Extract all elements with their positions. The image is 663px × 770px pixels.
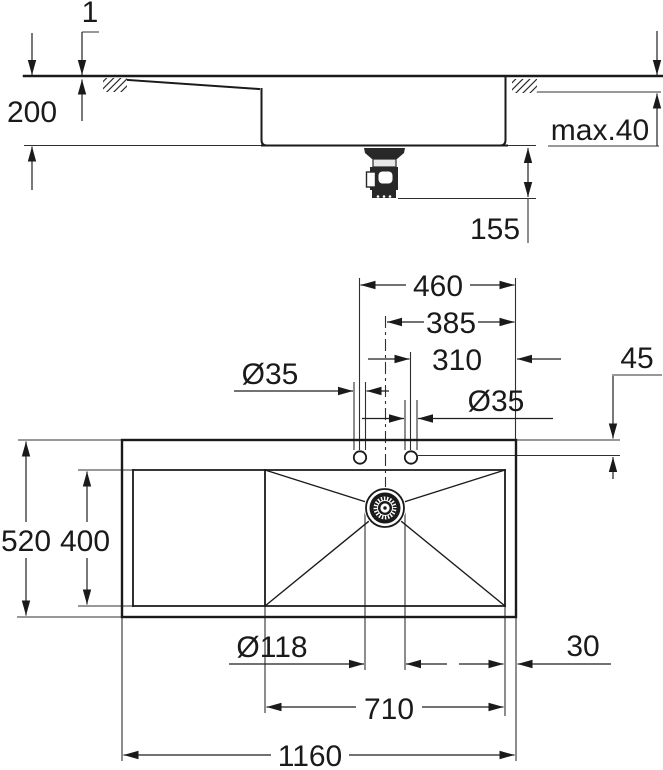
dim-drain-height: 155 xyxy=(398,148,536,246)
dim-460: 460 xyxy=(361,270,515,303)
sink-technical-drawing: 1 200 max.40 155 xyxy=(0,0,663,770)
side-view: 1 200 max.40 155 xyxy=(7,0,662,246)
drain-flange xyxy=(364,148,405,159)
dim-label-1: 1 xyxy=(82,0,99,29)
dim-45: 45 xyxy=(613,342,654,479)
faucet-hole-2 xyxy=(405,451,417,463)
dim-385: 385 xyxy=(387,307,515,340)
dim-710: 710 xyxy=(267,693,504,726)
dim-label-460: 460 xyxy=(413,270,463,303)
drain-neck xyxy=(373,159,396,167)
dim-520: 520 xyxy=(1,442,51,616)
drain-strainer-plan xyxy=(364,487,406,529)
drain-body-detail xyxy=(379,172,393,184)
drain-dot xyxy=(389,195,392,198)
dim-310: 310 xyxy=(368,344,561,377)
faucet-hole-1 xyxy=(354,451,366,463)
dim-label-385: 385 xyxy=(426,307,476,340)
dim-label-310: 310 xyxy=(432,344,482,377)
dim-bowl-depth: 200 xyxy=(7,33,57,190)
dim-400: 400 xyxy=(60,472,110,605)
dim-label-d118: Ø118 xyxy=(236,631,307,664)
dim-label-d35-right: Ø35 xyxy=(468,385,525,418)
dim-label-30: 30 xyxy=(566,630,599,663)
dim-label-520: 520 xyxy=(1,525,51,558)
drainboard-slope-line xyxy=(128,80,259,89)
drain-dot xyxy=(377,195,380,198)
drain-assembly-side xyxy=(364,148,405,198)
dim-label-max40: max.40 xyxy=(551,114,649,147)
drain-side-tab xyxy=(367,172,376,187)
dim-label-d35-left: Ø35 xyxy=(242,358,299,391)
dim-label-1160: 1160 xyxy=(278,740,343,770)
plan-view: 460 385 310 Ø35 Ø35 45 xyxy=(1,270,662,770)
drain-dot xyxy=(383,195,386,198)
dim-rim-height: 1 xyxy=(82,0,99,121)
dim-drain-diameter: Ø118 xyxy=(229,631,447,664)
bowl-left-wall xyxy=(262,89,268,146)
dim-label-710: 710 xyxy=(364,693,414,726)
drawing-page: 1 200 max.40 155 xyxy=(0,0,663,770)
dim-label-200: 200 xyxy=(7,96,57,129)
sink-outer-rim xyxy=(122,440,516,617)
dim-label-155: 155 xyxy=(470,213,520,246)
extension-lines xyxy=(17,278,662,761)
worktop-hatch-left xyxy=(103,78,127,92)
bowl-right-wall xyxy=(500,77,506,146)
worktop-hatch-right xyxy=(512,79,537,93)
dim-1160: 1160 xyxy=(124,740,515,770)
recess-outline xyxy=(133,470,505,606)
dim-hole2-diameter: Ø35 xyxy=(362,385,553,419)
dim-30: 30 xyxy=(459,630,611,664)
dim-label-400: 400 xyxy=(60,525,110,558)
dim-worktop-thickness: max.40 xyxy=(548,31,659,147)
dim-label-45: 45 xyxy=(620,342,653,375)
